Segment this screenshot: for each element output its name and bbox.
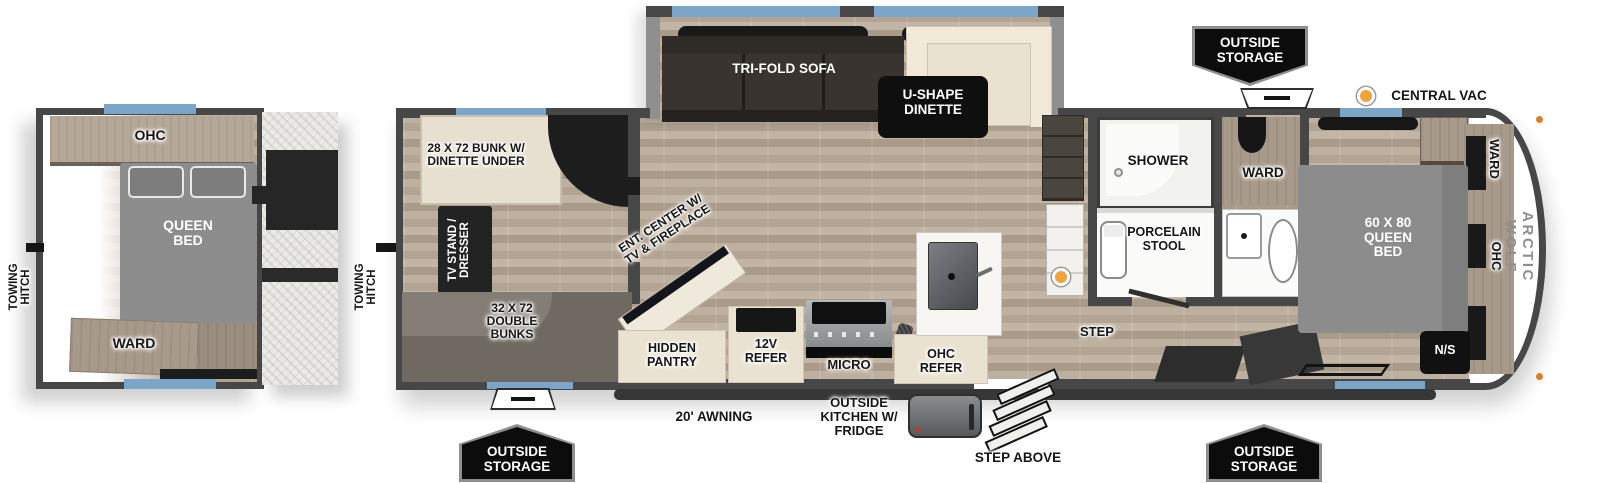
bunkroom-wall [628,115,640,177]
bed-head [1442,165,1468,333]
outside-storage-top-label: OUTSIDE STORAGE [1192,35,1308,65]
left-bed-pillow [128,166,184,198]
outside-fridge-icon [908,394,982,438]
left-shelf [262,268,338,282]
left-towing-hitch-label: TOWING HITCH [8,259,48,315]
left-tv-panel [266,150,338,230]
bath-wall-left [1088,115,1097,305]
fridge-light [915,427,921,433]
left-towing-hitch-icon [26,243,44,252]
slideout-top-cap [1038,6,1064,17]
main-towing-hitch-icon [376,243,396,252]
bunk-over-dinette-label: 28 X 72 BUNK W/ DINETTE UNDER [424,142,528,168]
tv-stand-dresser-label: TV STAND / DRESSER [447,207,483,293]
left-tv-mount [252,186,268,204]
slideout-top-cap [646,6,672,17]
shower-ledge [1097,206,1214,213]
slideout-wall-right [1050,6,1064,119]
sofa-front [662,110,904,122]
left-window-top [104,104,196,114]
refrigerator-12v-label: 12V REFER [740,338,792,365]
tall-cabinet [1042,115,1084,201]
vanity-faucet [1241,233,1247,239]
bath-ward-notch [1238,117,1266,153]
main-towing-hitch-label: TOWING HITCH [354,259,394,315]
bath-wall-bottom [1186,297,1306,306]
slideout-top-divider [840,6,874,17]
left-corner-cabinet [198,323,257,373]
outside-storage-rear-label: OUTSIDE STORAGE [1206,444,1322,474]
micro-label: MICRO [816,358,882,372]
outside-storage-badge-top: OUTSIDE STORAGE [1192,26,1308,86]
bedroom-ward-label: WARD [1487,127,1501,191]
marker-light [1536,373,1543,380]
slideout-wall-left [646,6,660,119]
baggage-door-bottom [490,388,556,410]
floorplan-diagram: OHC QUEEN BED WARD TOWING HITCH TOWING H… [0,0,1600,483]
shower-label: SHOWER [1120,154,1196,169]
vanity-toilet [1268,219,1298,283]
central-vac-label: CENTRAL VAC [1384,89,1494,104]
cabinet-door [1466,224,1486,268]
bedroom-top-cabinet [1420,117,1468,167]
bottom-window [1335,381,1425,389]
step-platform [1154,346,1246,382]
step-label: STEP [1072,325,1122,339]
left-window-bottom [124,379,216,389]
roof-vent [1298,364,1390,376]
bath-ward-label: WARD [1226,166,1300,181]
tri-fold-sofa [662,36,904,122]
awning-label: 20' AWNING [658,410,770,425]
shower-drain [1114,168,1123,177]
baggage-door-top [1240,88,1314,109]
bedroom-ohc-label: OHC [1489,234,1503,278]
bath-wall-bottom [1088,297,1132,306]
ohc-refer-label: OHC REFER [912,348,970,375]
refrigerator-top [736,308,796,332]
outside-storage-badge-rear: OUTSIDE STORAGE [1206,424,1322,482]
left-ohc-label: OHC [120,128,180,143]
central-vac-icon [1357,87,1375,105]
bath-wall-mid [1214,115,1222,305]
nightstand-label: N/S [1420,344,1470,358]
left-bed-pillow [190,166,246,198]
knob-row [814,332,884,337]
sink-drain [948,273,955,280]
u-shape-dinette-label: U-SHAPE DINETTE [884,88,982,117]
marker-light [1536,116,1543,123]
bottom-window [487,381,573,389]
bedroom-window-top [1318,117,1418,130]
step-above-label: STEP ABOVE [966,451,1070,466]
central-vac-unit-icon [1052,268,1070,286]
cabinet-door [1466,136,1486,190]
dinette-back [907,27,1051,44]
outside-storage-badge-front: OUTSIDE STORAGE [459,424,575,482]
left-entry-mat [160,369,257,379]
left-queen-bed-label: QUEEN BED [154,218,222,248]
left-ward-label: WARD [98,336,170,351]
double-bunks-label: 32 X 72 DOUBLE BUNKS [470,302,554,341]
range-stove [806,300,892,350]
outside-storage-front-label: OUTSIDE STORAGE [459,444,575,474]
porcelain-stool-label: PORCELAIN STOOL [1118,226,1210,253]
burner-panel [812,302,886,324]
sofa-back [662,36,904,54]
hidden-pantry-label: HIDDEN PANTRY [636,342,708,369]
tri-fold-sofa-label: TRI-FOLD SOFA [698,62,870,77]
outside-kitchen-label: OUTSIDE KITCHEN W/ FRIDGE [812,396,906,438]
queen-bed-label: 60 X 80 QUEEN BED [1352,216,1424,260]
brand-text: ARCTIC WOLF [1518,182,1536,312]
